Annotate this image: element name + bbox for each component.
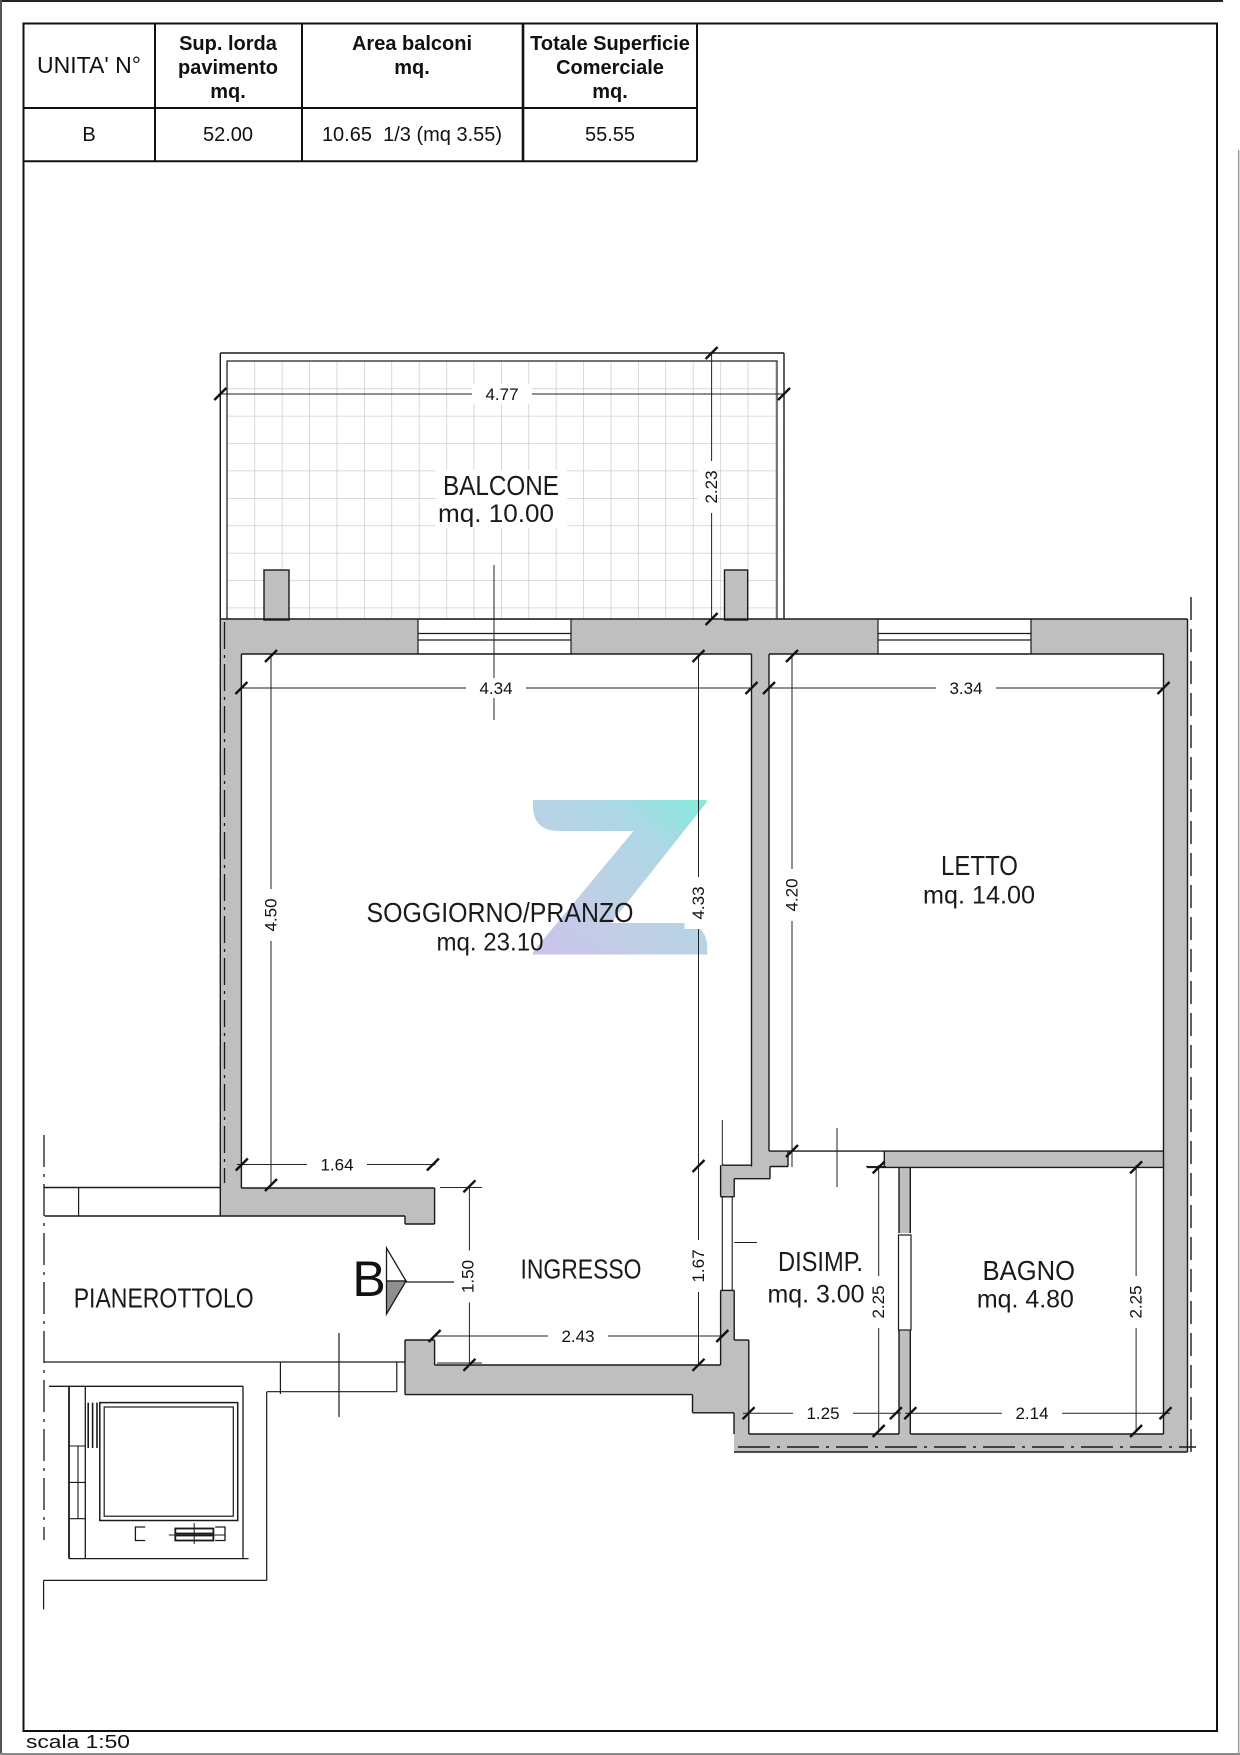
svg-text:mq.: mq. bbox=[394, 57, 430, 79]
svg-text:1.25: 1.25 bbox=[806, 1404, 839, 1423]
svg-text:mq. 3.00: mq. 3.00 bbox=[768, 1281, 865, 1309]
svg-text:mq. 23.10: mq. 23.10 bbox=[437, 929, 544, 957]
svg-text:Area balconi: Area balconi bbox=[352, 33, 472, 55]
svg-text:SOGGIORNO/PRANZO: SOGGIORNO/PRANZO bbox=[367, 897, 634, 928]
svg-text:scala 1:50: scala 1:50 bbox=[26, 1732, 130, 1752]
svg-text:mq.: mq. bbox=[210, 81, 246, 103]
svg-text:INGRESSO: INGRESSO bbox=[521, 1254, 642, 1285]
svg-text:1.64: 1.64 bbox=[320, 1156, 353, 1175]
svg-text:4.50: 4.50 bbox=[262, 898, 281, 931]
svg-text:4.77: 4.77 bbox=[485, 385, 518, 404]
svg-text:BAGNO: BAGNO bbox=[983, 1255, 1076, 1286]
svg-text:2.25: 2.25 bbox=[1127, 1285, 1146, 1318]
svg-text:4.33: 4.33 bbox=[689, 886, 708, 919]
svg-text:B: B bbox=[352, 1251, 385, 1307]
svg-text:2.25: 2.25 bbox=[869, 1285, 888, 1318]
svg-text:mq. 14.00: mq. 14.00 bbox=[923, 882, 1035, 910]
svg-text:10.65 1/3 (mq 3.55): 10.65 1/3 (mq 3.55) bbox=[322, 124, 502, 146]
svg-text:LETTO: LETTO bbox=[941, 850, 1018, 881]
svg-text:2.43: 2.43 bbox=[561, 1327, 594, 1346]
svg-text:UNITA' N°: UNITA' N° bbox=[37, 52, 141, 78]
svg-text:4.34: 4.34 bbox=[479, 679, 512, 698]
svg-text:mq. 10.00: mq. 10.00 bbox=[438, 500, 554, 528]
svg-text:1.50: 1.50 bbox=[459, 1260, 478, 1293]
svg-text:DISIMP.: DISIMP. bbox=[778, 1246, 863, 1277]
svg-text:BALCONE: BALCONE bbox=[443, 470, 559, 501]
svg-text:Comerciale: Comerciale bbox=[556, 57, 664, 79]
svg-text:Totale Superficie: Totale Superficie bbox=[530, 33, 690, 55]
svg-text:55.55: 55.55 bbox=[585, 124, 635, 146]
svg-text:2.14: 2.14 bbox=[1015, 1404, 1048, 1423]
svg-text:2.23: 2.23 bbox=[702, 470, 721, 503]
svg-text:1.67: 1.67 bbox=[689, 1249, 708, 1282]
svg-text:3.34: 3.34 bbox=[949, 679, 982, 698]
svg-text:4.20: 4.20 bbox=[783, 878, 802, 911]
svg-text:PIANEROTTOLO: PIANEROTTOLO bbox=[74, 1283, 254, 1314]
svg-text:Sup. lorda: Sup. lorda bbox=[179, 33, 278, 55]
svg-text:pavimento: pavimento bbox=[178, 57, 278, 79]
svg-text:mq.: mq. bbox=[592, 81, 628, 103]
svg-text:mq. 4.80: mq. 4.80 bbox=[977, 1286, 1074, 1314]
svg-text:52.00: 52.00 bbox=[203, 124, 253, 146]
svg-text:B: B bbox=[82, 124, 95, 146]
